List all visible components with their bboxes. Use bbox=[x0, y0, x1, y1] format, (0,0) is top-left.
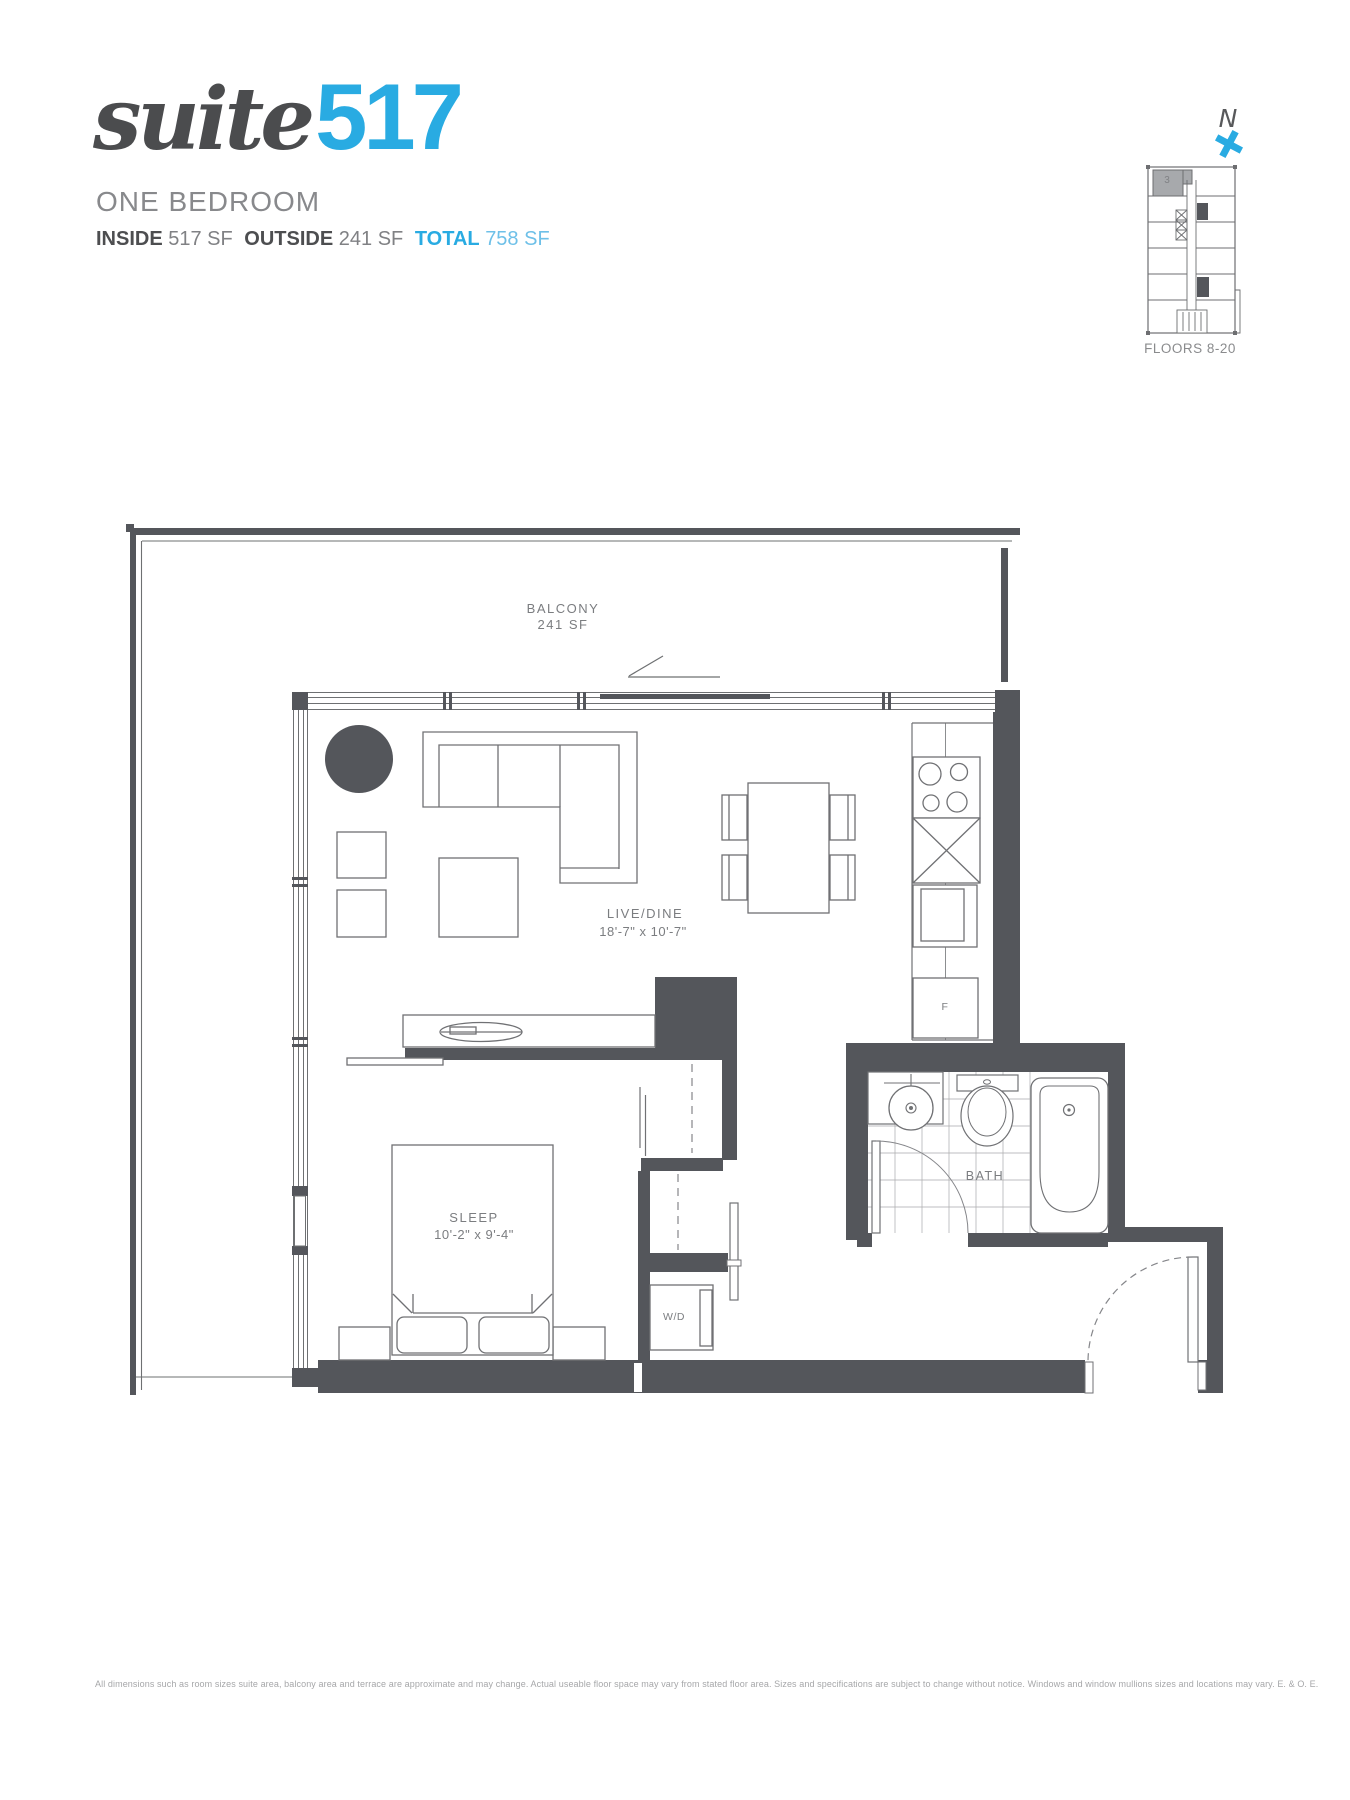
side-table bbox=[337, 832, 386, 878]
sleep-dims: 10'-2" x 9'-4" bbox=[434, 1227, 514, 1242]
keyplan bbox=[1146, 125, 1248, 335]
closet-door bbox=[730, 1203, 738, 1300]
floors-label: FLOORS 8-20 bbox=[1144, 341, 1236, 356]
sleep-label: SLEEP bbox=[449, 1210, 498, 1225]
operable-window bbox=[295, 1196, 306, 1246]
disclaimer-text: All dimensions such as room sizes suite … bbox=[95, 1679, 1318, 1689]
round-rug bbox=[325, 725, 393, 793]
entry-door-leaf bbox=[1188, 1257, 1198, 1362]
bath-door bbox=[872, 1141, 880, 1233]
pillow bbox=[397, 1317, 467, 1353]
floorplan-drawing bbox=[0, 0, 1350, 1800]
floorplan-page: suite 517 ONE BEDROOM INSIDE 517 SF OUTS… bbox=[0, 0, 1350, 1800]
nightstand bbox=[553, 1327, 605, 1360]
bath-label: BATH bbox=[966, 1169, 1004, 1183]
bath-fixtures bbox=[868, 1072, 1108, 1233]
side-table bbox=[337, 890, 386, 937]
sliding-door-arrow bbox=[628, 656, 720, 677]
balcony-label: BALCONY bbox=[527, 601, 600, 616]
toilet-bowl bbox=[961, 1086, 1013, 1146]
keyplan-unit-number: 3 bbox=[1164, 175, 1170, 186]
live-dine-label: LIVE/DINE bbox=[607, 906, 683, 921]
washer-dryer-label: W/D bbox=[663, 1311, 685, 1323]
pillow bbox=[479, 1317, 549, 1353]
balcony-area-label: 241 SF bbox=[538, 617, 589, 632]
fridge-label: F bbox=[942, 1001, 949, 1013]
entry-door bbox=[1085, 1257, 1206, 1393]
nightstand bbox=[339, 1327, 390, 1360]
north-label: N bbox=[1219, 104, 1238, 133]
dining-table bbox=[748, 783, 829, 913]
coffee-table bbox=[439, 858, 518, 937]
dining-set bbox=[722, 783, 855, 913]
kitchen-sink bbox=[913, 885, 977, 947]
live-dine-dims: 18'-7" x 10'-7" bbox=[599, 924, 686, 939]
bathtub bbox=[1031, 1078, 1108, 1233]
shelf bbox=[347, 1058, 443, 1065]
